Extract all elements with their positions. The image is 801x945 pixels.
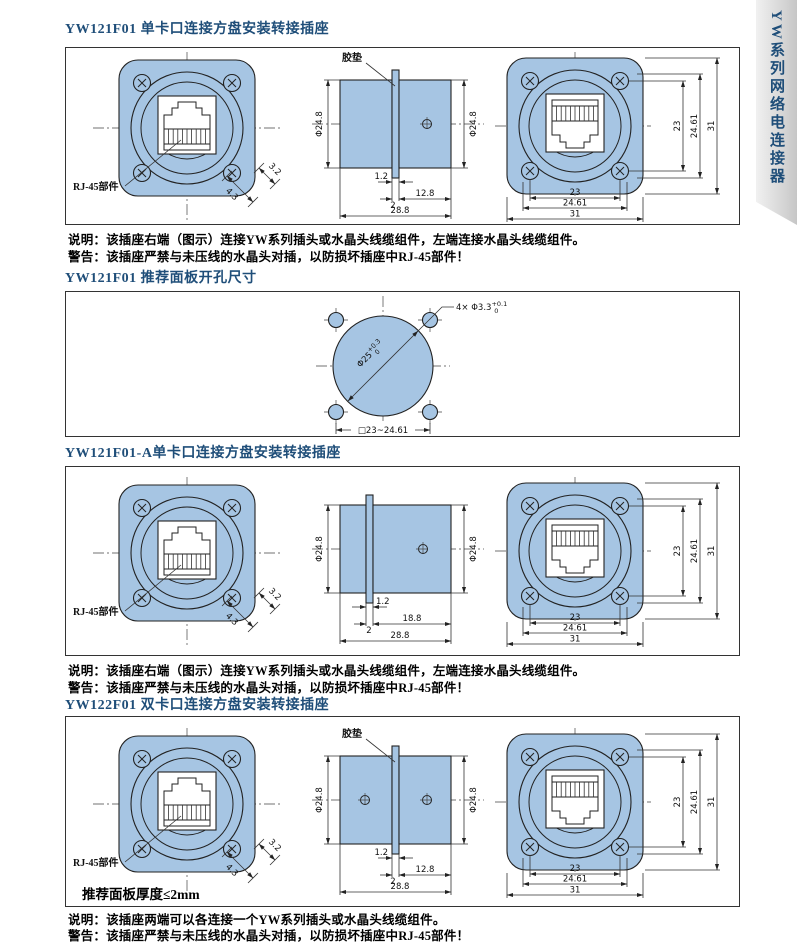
dimension-label: 31 <box>707 796 717 807</box>
warning-1: 警告：该插座严禁与未压线的水晶头对插，以防损坏插座中RJ-45部件！ <box>68 246 469 265</box>
dimension-label: 12.8 <box>415 189 434 199</box>
dimension-label: 24.61 <box>562 624 586 634</box>
dimension-label: 3.2 <box>266 837 283 854</box>
dimension-label: 3.2 <box>266 586 283 603</box>
dimension-label: 28.8 <box>390 631 409 641</box>
body-side <box>340 495 451 603</box>
dimension-label: 18.8 <box>402 614 421 624</box>
rear-view-drawing-3: 23 24.61 31 23 24.61 31 <box>489 475 739 647</box>
side-view-drawing-4: 胶垫 Φ24.8 Φ24.8 1.2 12.8 2 28.8 <box>308 726 488 898</box>
dimension-label: 28.8 <box>390 882 409 892</box>
panel-thickness-note: 推荐面板厚度≤2mm <box>82 883 200 903</box>
rj45-label: RJ-45部件 <box>73 856 119 869</box>
front-view-drawing-1: RJ-45部件 4.3 3.2 <box>67 50 307 222</box>
dimension-label: □23~24.61 <box>357 426 407 436</box>
square-dimension: □23~24.61 <box>336 423 430 436</box>
dimension-label: 31 <box>707 546 717 557</box>
rj45-label: RJ-45部件 <box>73 180 119 193</box>
front-view-drawing-3: RJ-45部件 4.3 3.2 <box>67 475 307 647</box>
dimension-label: 28.8 <box>390 206 409 216</box>
dimension-label: Φ24.8 <box>315 111 325 137</box>
dimension-label: 24.61 <box>562 874 586 884</box>
front-view-drawing-4: RJ-45部件 4.3 3.2 <box>67 726 307 898</box>
body-side <box>340 70 451 178</box>
figure-box-1: RJ-45部件 4.3 3.2 胶垫 <box>65 47 740 225</box>
dimension-label: 23 <box>569 613 580 623</box>
sidebar-tab-label: YW系列网络电连接器 <box>766 0 787 232</box>
rj45-jack-front <box>158 772 216 830</box>
warning-3: 警告：该插座严禁与未压线的水晶头对插，以防损坏插座中RJ-45部件！ <box>68 925 469 944</box>
dimension-label: 24.61 <box>690 539 700 563</box>
rj45-jack-front <box>158 521 216 579</box>
rj45-jack-rear <box>546 94 604 152</box>
dimension-label: 31 <box>569 635 580 645</box>
dimension-label: 31 <box>569 885 580 895</box>
dimension-label: 12.8 <box>415 865 434 875</box>
section-title-2: YW121F01 推荐面板开孔尺寸 <box>65 267 257 287</box>
dimension-label: Φ24.8 <box>315 787 325 813</box>
dimension-label: 1.2 <box>376 597 390 607</box>
dimension-label: 24.61 <box>690 114 700 138</box>
rear-view-drawing-1: 23 24.61 31 23 24.61 31 <box>489 50 739 222</box>
dimension-label: 31 <box>707 121 717 132</box>
rj45-jack-rear <box>546 519 604 577</box>
section-title-4: YW122F01 双卡口连接方盘安装转接插座 <box>65 694 329 714</box>
dimension-label: 1.2 <box>374 172 388 182</box>
rear-view-drawing-4: 23 24.61 31 23 24.61 31 <box>489 726 739 898</box>
dimension-label: 23 <box>569 188 580 198</box>
dimension-label: 2 <box>366 626 371 636</box>
dimension-label: Φ24.8 <box>469 111 479 137</box>
figure-box-3: RJ-45部件 4.3 3.2 Φ24.8 Φ24 <box>65 466 740 656</box>
dimension-label: 1.2 <box>374 848 388 858</box>
figure-box-4: RJ-45部件 4.3 3.2 胶垫 <box>65 716 740 907</box>
dimension-label: 23 <box>673 546 683 557</box>
rj45-jack-rear <box>546 770 604 828</box>
rj45-label: RJ-45部件 <box>73 605 119 618</box>
section-title-3: YW121F01-A单卡口连接方盘安装转接插座 <box>65 442 341 462</box>
sidebar-tab: YW系列网络电连接器 <box>756 0 797 232</box>
section-title-1: YW121F01 单卡口连接方盘安装转接插座 <box>65 18 329 38</box>
dimension-label: 23 <box>673 796 683 807</box>
side-view-drawing-1: 胶垫 Φ24.8 Φ24.8 1.2 12.8 2 28.8 <box>308 50 488 222</box>
panel-cutout-drawing: Φ25+0.30 4× Φ3.3+0.10 □23~24.61 <box>188 292 618 436</box>
dimension-label: Φ24.8 <box>469 787 479 813</box>
dimension-label: Φ24.8 <box>315 536 325 562</box>
holes-dimension-label: 4× Φ3.3+0.10 <box>456 300 507 315</box>
side-view-drawing-3: Φ24.8 Φ24.8 1.2 18.8 2 28.8 <box>308 475 488 647</box>
dimension-label: 3.2 <box>266 161 283 178</box>
dimension-label: 31 <box>569 210 580 220</box>
dimension-label: 23 <box>569 864 580 874</box>
datasheet-page: YW系列网络电连接器 YW121F01 单卡口连接方盘安装转接插座 <box>0 0 801 945</box>
gasket-label: 胶垫 <box>342 51 362 64</box>
dimension-label: Φ24.8 <box>469 536 479 562</box>
rj45-jack-front <box>158 96 216 154</box>
dimension-label: 23 <box>673 121 683 132</box>
body-side <box>340 746 451 854</box>
dimension-label: 24.61 <box>690 789 700 813</box>
dimension-label: 24.61 <box>562 199 586 209</box>
figure-box-2: Φ25+0.30 4× Φ3.3+0.10 □23~24.61 <box>65 291 740 437</box>
gasket-label: 胶垫 <box>342 727 362 740</box>
